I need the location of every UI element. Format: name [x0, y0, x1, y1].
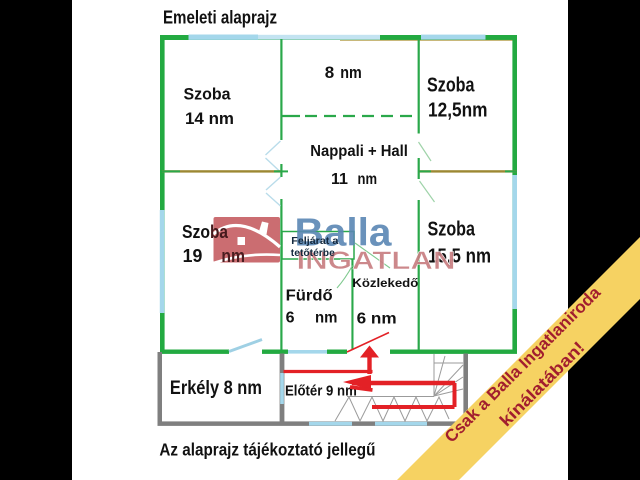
svg-text:nm: nm	[358, 171, 378, 188]
svg-text:12,5nm: 12,5nm	[428, 99, 488, 121]
svg-text:Közlekedő: Közlekedő	[352, 276, 418, 290]
svg-text:nm: nm	[221, 245, 245, 266]
svg-text:8: 8	[325, 63, 334, 82]
svg-text:6: 6	[286, 310, 295, 327]
svg-text:19: 19	[183, 245, 203, 266]
svg-text:Erkély 8 nm: Erkély 8 nm	[170, 377, 262, 399]
svg-text:6 nm: 6 nm	[357, 311, 397, 328]
svg-text:Emeleti alaprajz: Emeleti alaprajz	[163, 8, 277, 28]
svg-text:nm: nm	[340, 63, 362, 82]
svg-text:Nappali + Hall: Nappali + Hall	[310, 143, 408, 160]
svg-text:11: 11	[331, 171, 348, 188]
svg-text:ba: ba	[210, 221, 229, 242]
svg-text:Az alaprajz tájékoztató jelleg: Az alaprajz tájékoztató jellegű	[159, 440, 375, 460]
svg-text:14 nm: 14 nm	[185, 109, 234, 128]
svg-text:Feljárat a: Feljárat a	[291, 235, 338, 247]
svg-text:Szoba: Szoba	[427, 74, 475, 96]
svg-text:Előtér 9 nm: Előtér 9 nm	[285, 383, 357, 399]
svg-text:Fürdő: Fürdő	[286, 288, 333, 305]
svg-text:tetőtérbe: tetőtérbe	[291, 247, 335, 259]
svg-text:Szoba: Szoba	[428, 219, 476, 241]
svg-text:nm: nm	[315, 310, 337, 327]
svg-text:Szoba: Szoba	[184, 84, 232, 103]
svg-text:Szo: Szo	[182, 221, 210, 242]
